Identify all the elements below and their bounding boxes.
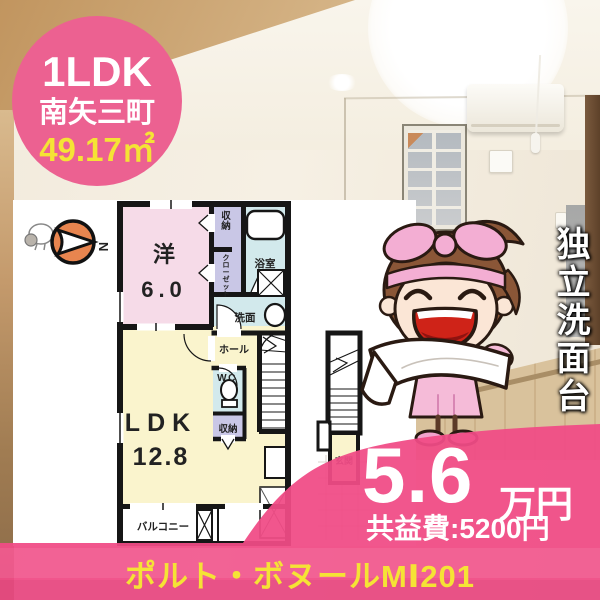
label-balcony: バルコニー [137,521,189,533]
info-badge: 1LDK 南矢三町 49.17㎡ [12,16,182,186]
building-name: ポルト・ボヌールMⅠ201 [0,551,600,596]
layout-type: 1LDK [12,49,182,95]
label-storage-top: 収納 [221,210,231,232]
air-conditioner [467,84,564,132]
label-storage-mid: 収納 [218,423,237,435]
floor-plan: N 洋 6.0 収納 クローゼット 浴室 洗面 ホール WC 収納 LDK 12… [13,200,416,546]
label-ldk: LDK [125,409,197,437]
feature-vertical-label: 独立洗面台 [546,226,595,426]
small-ceiling-light [326,74,358,91]
label-washroom: 洗面 [235,311,256,324]
compass-n-label: N [96,242,111,251]
label-closet: クローゼット [223,253,230,298]
town-name: 南矢三町 [12,95,182,131]
bathtub-icon [247,211,284,239]
label-bath: 浴室 [255,257,276,270]
mascot-character [358,210,543,450]
label-wc: WC [217,373,237,384]
light-pull-handle [531,133,540,153]
label-bedroom-size: 6.0 [141,277,187,302]
service-areas [260,447,288,538]
washbasin-icon [265,304,285,326]
label-ldk-size: 12.8 [133,443,190,471]
label-hall: ホール [219,344,249,356]
flyer-canvas: N 洋 6.0 収納 クローゼット 浴室 洗面 ホール WC 収納 LDK 12… [0,0,600,600]
left-wall-strip [0,110,14,600]
label-entrance: 玄関 [335,455,353,466]
floor-area: 49.17㎡ [12,131,182,169]
light-switch [489,150,513,173]
label-bedroom: 洋 [153,242,175,267]
wall-corner-line [344,98,346,210]
floor-plan-panel: N 洋 6.0 収納 クローゼット 浴室 洗面 ホール WC 収納 LDK 12… [13,200,416,546]
ac-vent [471,124,560,127]
compass: N [25,221,111,263]
bow-knot-icon [434,234,456,256]
common-fee: 共益費:5200円 [366,507,550,547]
rent-amount: 5.6 [362,436,473,514]
